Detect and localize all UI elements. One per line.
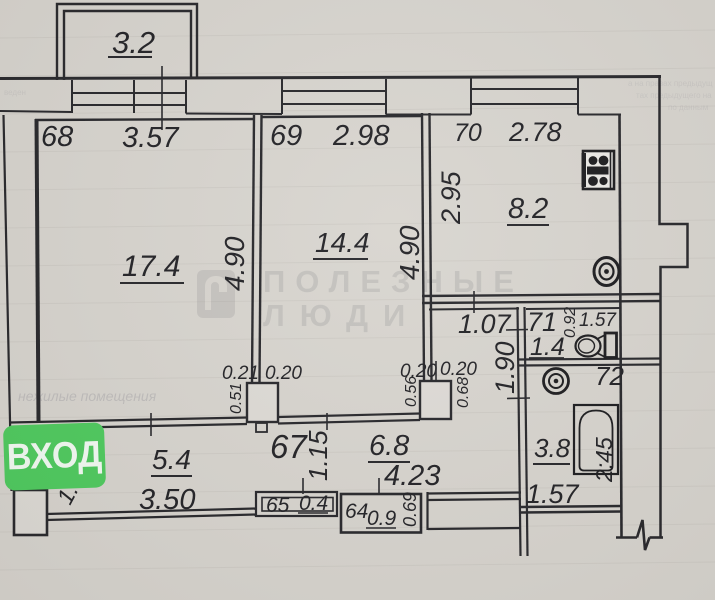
svg-text:3.2: 3.2	[112, 25, 155, 60]
svg-text:8.2: 8.2	[508, 193, 548, 225]
svg-text:0.4: 0.4	[299, 492, 328, 515]
svg-text:14.4: 14.4	[315, 227, 370, 258]
svg-text:2.95: 2.95	[436, 170, 466, 225]
svg-text:0.69: 0.69	[400, 492, 420, 527]
svg-text:1.57: 1.57	[579, 310, 617, 331]
svg-text:0.51: 0.51	[228, 383, 245, 414]
svg-text:0.9: 0.9	[367, 507, 397, 530]
svg-text:5.4: 5.4	[152, 444, 191, 475]
svg-text:70: 70	[454, 119, 482, 147]
svg-text:17.4: 17.4	[122, 250, 180, 283]
svg-text:а на правах предыдущ: а на правах предыдущ	[628, 79, 713, 88]
svg-text:1.4: 1.4	[530, 333, 565, 361]
svg-text:72: 72	[595, 361, 624, 391]
svg-text:ЛЮДИ: ЛЮДИ	[263, 298, 420, 333]
svg-text:4.23: 4.23	[384, 460, 440, 492]
svg-text:4.90: 4.90	[394, 225, 425, 280]
svg-text:веден: веден	[4, 88, 26, 97]
svg-text:1.90: 1.90	[490, 341, 520, 394]
svg-text:1.15: 1.15	[303, 430, 333, 481]
svg-text:по данным: по данным	[668, 103, 708, 112]
svg-text:3.8: 3.8	[534, 433, 571, 463]
svg-text:1.07: 1.07	[458, 309, 512, 339]
svg-text:65: 65	[266, 494, 290, 517]
svg-text:68: 68	[41, 121, 73, 153]
svg-text:1.57: 1.57	[526, 479, 580, 509]
svg-text:64: 64	[345, 500, 368, 523]
svg-text:6.8: 6.8	[369, 430, 409, 462]
svg-text:0.68: 0.68	[455, 377, 472, 408]
svg-text:0.20: 0.20	[440, 359, 477, 380]
svg-text:0.20: 0.20	[265, 363, 302, 384]
svg-text:2.78: 2.78	[508, 117, 562, 147]
svg-text:69: 69	[270, 120, 302, 152]
svg-text:2.98: 2.98	[332, 120, 389, 152]
svg-text:4.90: 4.90	[219, 236, 250, 291]
svg-text:3.57: 3.57	[122, 122, 180, 154]
svg-text:тах предыдущего на: тах предыдущего на	[636, 91, 712, 100]
svg-text:0.56: 0.56	[403, 376, 420, 407]
svg-text:0.21: 0.21	[222, 363, 259, 384]
